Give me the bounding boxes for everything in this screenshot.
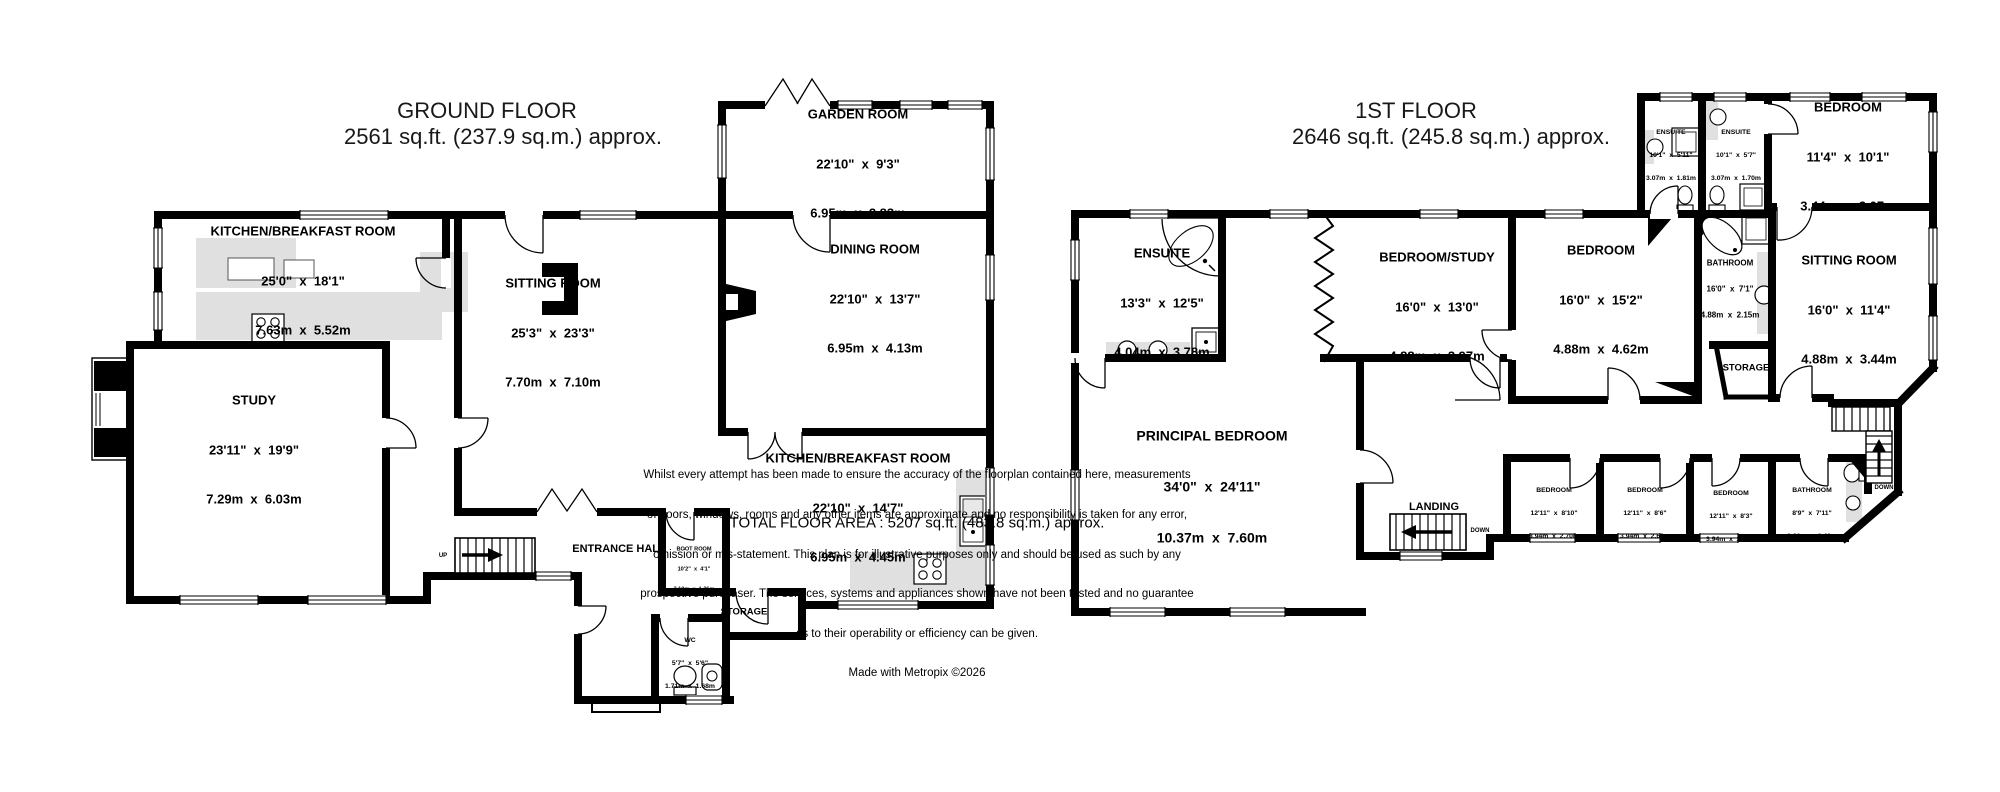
room-name: BEDROOM <box>1620 487 1670 495</box>
room-name: PRINCIPAL BEDROOM <box>1136 428 1287 445</box>
ground-floor-area: 2561 sq.ft. (237.9 sq.m.) approx. <box>344 72 662 202</box>
room-metric: 7.70m x 7.10m <box>505 374 600 391</box>
floor-area-text: 2646 sq.ft. (245.8 sq.m.) approx. <box>1292 124 1610 150</box>
stairs-up-label: UP <box>439 541 447 571</box>
stairs-down-label-secondary: DOWN <box>1875 473 1894 503</box>
disclaimer-line: Whilst every attempt has been made to en… <box>640 469 1193 482</box>
room-metric: 4.04m x 3.78m <box>1114 344 1209 361</box>
room-imperial: 16'0" x 15'2" <box>1553 292 1648 309</box>
room-imperial: 22'10" x 13'7" <box>827 291 922 308</box>
room-imperial: 25'0" x 18'1" <box>211 273 396 290</box>
room-name: SITTING ROOM <box>505 275 600 292</box>
first-floor-area: 2646 sq.ft. (245.8 sq.m.) approx. <box>1292 72 1610 202</box>
room-label-ensuite-2: ENSUITE 10'1" x 5'7" 3.07m x 1.70m <box>1711 113 1761 199</box>
floor-area-text: 2561 sq.ft. (237.9 sq.m.) approx. <box>344 124 662 150</box>
room-imperial: 16'0" x 7'1" <box>1701 286 1760 295</box>
room-label-bedroom-small-1: BEDROOM 12'11" x 8'10" 3.94m x 2.70m <box>1529 471 1579 557</box>
disclaimer-line: prospective purchaser. The services, sys… <box>640 588 1193 601</box>
room-imperial: 25'3" x 23'3" <box>505 325 600 342</box>
disclaimer-line: of doors, windows, rooms and any other i… <box>640 509 1193 522</box>
room-label-dining-room: DINING ROOM 22'10" x 13'7" 6.95m x 4.13m <box>827 208 922 390</box>
room-label-bedroom-small-2: BEDROOM 12'11" x 8'6" 3.94m x 2.60m <box>1620 471 1670 557</box>
room-name: ENSUITE <box>1711 129 1761 137</box>
floorplan-page: GROUND FLOOR 2561 sq.ft. (237.9 sq.m.) a… <box>0 0 2000 792</box>
room-label-storage-ff: STORAGE <box>1723 341 1770 396</box>
room-metric: 4.88m x 2.15m <box>1701 312 1760 321</box>
room-label-bedroom-study: BEDROOM/STUDY 16'0" x 13'0" 4.88m x 3.97… <box>1379 216 1495 398</box>
room-label-bathroom-1: BATHROOM 16'0" x 7'1" 4.88m x 2.15m <box>1701 242 1760 339</box>
room-metric: 3.94m x 2.70m <box>1529 533 1579 541</box>
room-name: BEDROOM <box>1800 99 1895 116</box>
room-metric: 3.44m x 3.07m <box>1800 198 1895 215</box>
room-metric: 7.29m x 6.03m <box>206 491 301 508</box>
room-name: BATHROOM <box>1787 487 1837 495</box>
room-imperial: 12'11" x 8'3" <box>1706 513 1756 521</box>
ground-staircase <box>455 538 535 573</box>
disclaimer: Whilst every attempt has been made to en… <box>640 443 1193 707</box>
room-metric: 3.07m x 1.81m <box>1646 175 1696 183</box>
stairs-down-label-main: DOWN <box>1471 516 1490 546</box>
sloped-ceiling-zigzag <box>1315 214 1333 362</box>
room-imperial: 12'11" x 8'10" <box>1529 510 1579 518</box>
study-bay-window <box>92 358 130 460</box>
room-metric: 3.07m x 1.70m <box>1711 175 1761 183</box>
room-name: BATHROOM <box>1701 259 1760 268</box>
room-metric: 3.94m x 2.60m <box>1620 533 1670 541</box>
room-imperial: 16'0" x 11'4" <box>1801 302 1896 319</box>
room-imperial: 11'4" x 10'1" <box>1800 149 1895 166</box>
room-label-bathroom-2: BATHROOM 8'9" x 7'11" 2.66m x 2.40m <box>1787 471 1837 557</box>
room-imperial: 10'1" x 5'7" <box>1711 152 1761 160</box>
room-label-sitting-room-ff: SITTING ROOM 16'0" x 11'4" 4.88m x 3.44m <box>1801 219 1896 401</box>
stairs-direction-text: DOWN <box>1471 528 1490 534</box>
room-name: STUDY <box>206 392 301 409</box>
disclaimer-line: omission or mis-statement. This plan is … <box>640 549 1193 562</box>
room-label-ensuite-main: ENSUITE 13'3" x 12'5" 4.04m x 3.78m <box>1114 212 1209 394</box>
room-name: BEDROOM <box>1706 490 1756 498</box>
room-metric: 4.88m x 3.97m <box>1379 348 1495 365</box>
room-name: BEDROOM/STUDY <box>1379 249 1495 266</box>
room-label-bedroom-middle: BEDROOM 16'0" x 15'2" 4.88m x 4.62m <box>1553 209 1648 391</box>
room-imperial: 22'10" x 9'3" <box>808 156 908 173</box>
credit-line: Made with Metropix ©2026 <box>640 667 1193 680</box>
room-name: ENSUITE <box>1646 129 1696 137</box>
room-name: GARDEN ROOM <box>808 106 908 123</box>
room-name: BEDROOM <box>1529 487 1579 495</box>
stairs-direction-text: UP <box>439 553 447 559</box>
room-metric: 7.63m x 5.52m <box>211 322 396 339</box>
room-label-kitchen-breakfast: KITCHEN/BREAKFAST ROOM 25'0" x 18'1" 7.6… <box>211 190 396 372</box>
chimney-breast-icon <box>722 283 756 322</box>
room-name: DINING ROOM <box>827 241 922 258</box>
room-name: LANDING <box>1409 501 1459 513</box>
room-name: KITCHEN/BREAKFAST ROOM <box>211 223 396 240</box>
room-metric: 2.66m x 2.40m <box>1787 533 1837 541</box>
room-label-bedroom-small-3: BEDROOM 12'11" x 8'3" 3.94m x 2.50m <box>1706 474 1756 560</box>
room-imperial: 16'0" x 13'0" <box>1379 299 1495 316</box>
room-name: BEDROOM <box>1553 242 1648 259</box>
room-imperial: 8'9" x 7'11" <box>1787 510 1837 518</box>
room-label-study: STUDY 23'11" x 19'9" 7.29m x 6.03m <box>206 359 301 541</box>
room-metric: 4.88m x 3.44m <box>1801 351 1896 368</box>
room-name: SITTING ROOM <box>1801 252 1896 269</box>
disclaimer-line: as to their operability or efficiency ca… <box>640 628 1193 641</box>
room-name: ENSUITE <box>1114 245 1209 262</box>
room-imperial: 10'1" x 5'11" <box>1646 152 1696 160</box>
room-imperial: 12'11" x 8'6" <box>1620 510 1670 518</box>
room-imperial: 23'11" x 19'9" <box>206 442 301 459</box>
room-name: STORAGE <box>1723 363 1770 374</box>
room-metric: 3.94m x 2.50m <box>1706 536 1756 544</box>
room-label-landing: LANDING <box>1409 477 1459 537</box>
room-metric: 4.88m x 4.62m <box>1553 341 1648 358</box>
room-imperial: 13'3" x 12'5" <box>1114 295 1209 312</box>
room-label-sitting-room-gf: SITTING ROOM 25'3" x 23'3" 7.70m x 7.10m <box>505 242 600 424</box>
room-metric: 6.95m x 4.13m <box>827 340 922 357</box>
room-label-ensuite-1: ENSUITE 10'1" x 5'11" 3.07m x 1.81m <box>1646 113 1696 199</box>
stairs-direction-text: DOWN <box>1875 485 1894 491</box>
